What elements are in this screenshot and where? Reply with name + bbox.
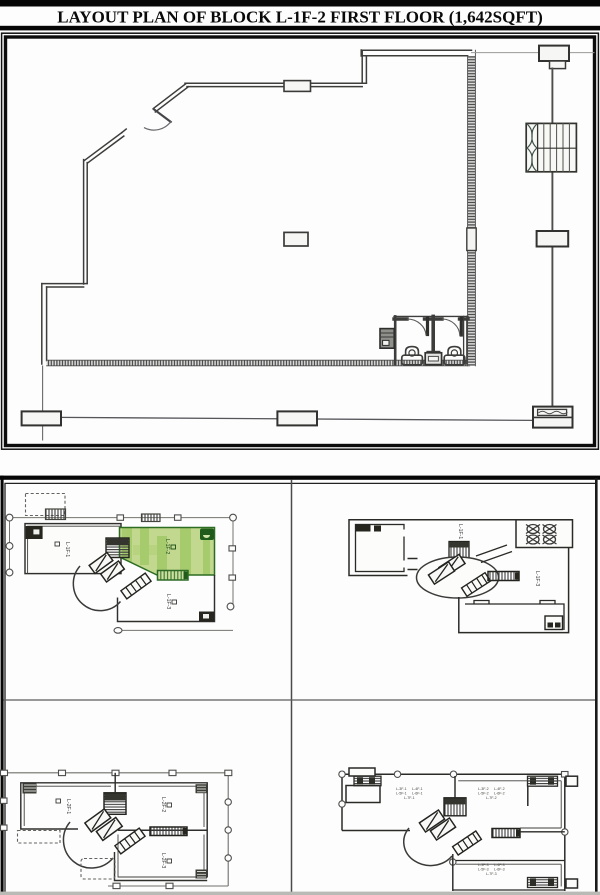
svg-text:L-3F-3: L-3F-3	[478, 863, 489, 867]
svg-text:L-1F-1: L-1F-1	[457, 524, 463, 539]
svg-text:L-6F-3: L-6F-3	[494, 868, 505, 872]
svg-text:L-7F-2: L-7F-2	[486, 796, 497, 800]
svg-text:L-1F-1: L-1F-1	[64, 542, 70, 557]
svg-text:L-3F-1: L-3F-1	[396, 787, 407, 791]
svg-text:L-4F-2: L-4F-2	[494, 787, 505, 791]
svg-text:LAYOUT PLAN OF BLOCK L-1F-2 FI: LAYOUT PLAN OF BLOCK L-1F-2 FIRST FLOOR …	[57, 8, 543, 27]
svg-text:L-5F-2: L-5F-2	[478, 792, 489, 796]
svg-text:L-2F-1: L-2F-1	[65, 799, 71, 814]
svg-text:L-4F-3: L-4F-3	[494, 863, 505, 867]
svg-text:L-7F-3: L-7F-3	[486, 872, 497, 876]
svg-text:L-7F-1: L-7F-1	[404, 796, 415, 800]
svg-text:L-1F-3: L-1F-3	[165, 594, 171, 609]
svg-text:L-1F-3: L-1F-3	[534, 571, 540, 586]
svg-text:L-6F-2: L-6F-2	[494, 792, 505, 796]
svg-text:L-4F-1: L-4F-1	[412, 787, 423, 791]
svg-text:L-2F-2: L-2F-2	[160, 797, 166, 812]
svg-text:L-1F-2: L-1F-2	[164, 539, 170, 554]
svg-text:L-2F-3: L-2F-3	[160, 853, 166, 868]
svg-text:L-6F-1: L-6F-1	[412, 792, 423, 796]
svg-text:L-3F-2: L-3F-2	[478, 787, 489, 791]
svg-text:L-5F-1: L-5F-1	[396, 792, 407, 796]
svg-text:L-5F-3: L-5F-3	[478, 868, 489, 872]
